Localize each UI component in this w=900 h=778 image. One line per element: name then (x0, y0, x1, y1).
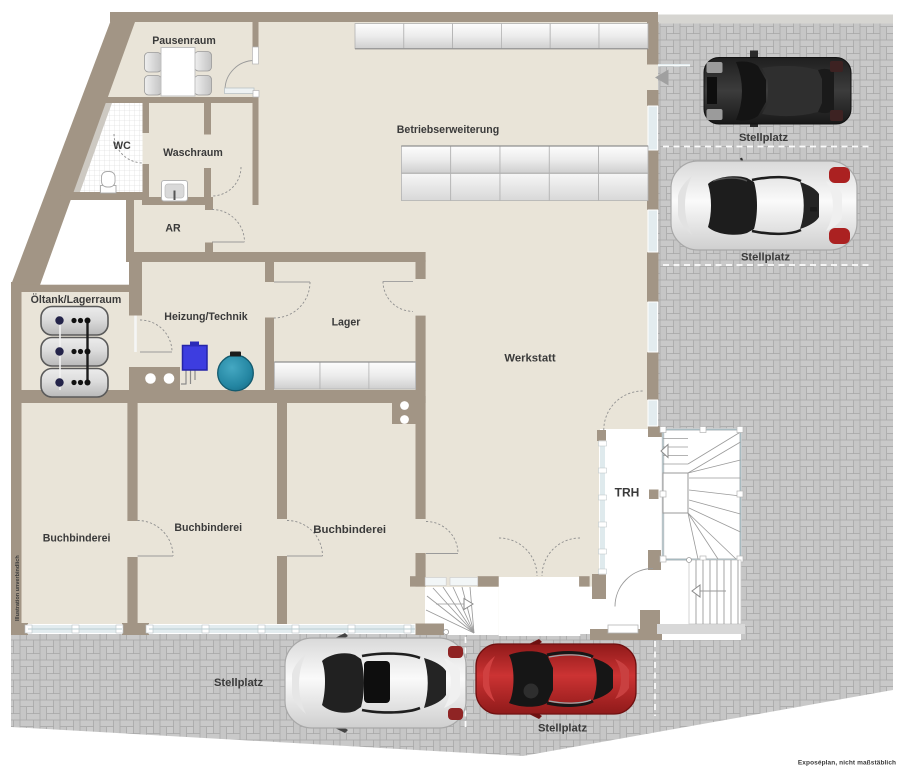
svg-text:AR: AR (165, 223, 181, 235)
svg-text:Stellplatz: Stellplatz (214, 677, 264, 689)
svg-text:Betriebserweiterung: Betriebserweiterung (397, 124, 499, 136)
svg-text:Stellplatz: Stellplatz (538, 723, 588, 735)
svg-text:Stellplatz: Stellplatz (739, 132, 789, 144)
svg-text:Werkstatt: Werkstatt (504, 353, 556, 365)
svg-text:Pausenraum: Pausenraum (152, 35, 216, 47)
svg-text:Exposéplan, nicht maßstäblich: Exposéplan, nicht maßstäblich (798, 760, 896, 767)
svg-text:Buchbinderei: Buchbinderei (174, 522, 242, 534)
svg-text:Buchbinderei: Buchbinderei (313, 524, 386, 536)
svg-text:Lager: Lager (332, 317, 361, 329)
svg-text:Öltank/Lagerraum: Öltank/Lagerraum (31, 293, 122, 306)
svg-text:Illustration unverbindlich: Illustration unverbindlich (15, 555, 21, 621)
svg-text:TRH: TRH (615, 486, 640, 500)
svg-text:Stellplatz: Stellplatz (741, 252, 791, 264)
svg-text:Waschraum: Waschraum (163, 147, 223, 159)
svg-text:Buchbinderei: Buchbinderei (43, 533, 111, 545)
svg-text:Heizung/Technik: Heizung/Technik (164, 311, 247, 323)
svg-text:WC: WC (113, 140, 131, 152)
